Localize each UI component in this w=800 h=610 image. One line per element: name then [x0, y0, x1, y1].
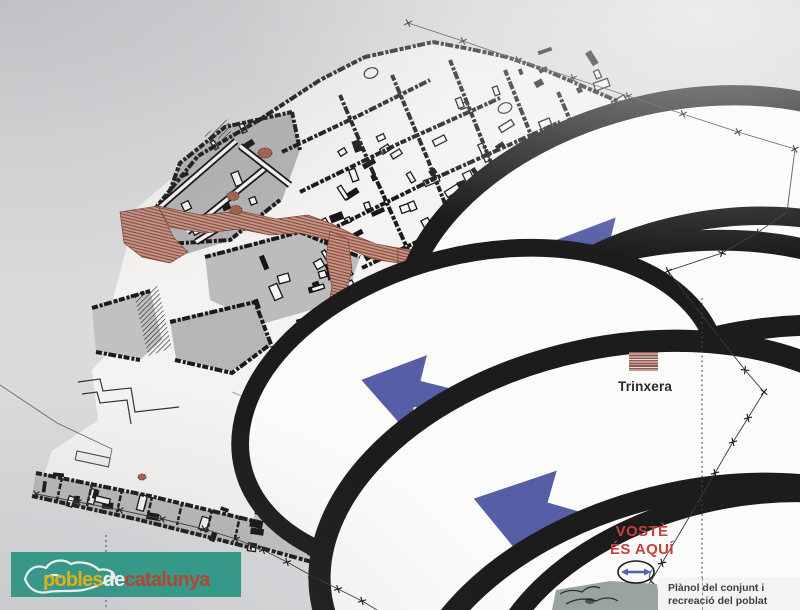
you-are-here-line2: ÉS AQUÍ: [596, 541, 688, 559]
information-panel-photo: Trinxera VOSTÈ ÉS AQUÍ Plànol del conjun…: [0, 0, 800, 610]
trench-legend-swatch-icon: [629, 352, 658, 371]
boundary-dotted-line: [702, 578, 703, 610]
you-are-here-label: VOSTÈ ÉS AQUÍ: [596, 523, 688, 559]
caption-box: Plànol del conjunt i recreació del pobla…: [658, 578, 800, 610]
logo-text-pobles: pobles: [43, 569, 103, 591]
map-legend: Trinxera: [618, 352, 688, 394]
trench-legend-label: Trinxera: [618, 379, 688, 394]
caption-line2: recreació del poblat: [668, 595, 800, 608]
logo-text: poblesdecatalunya: [43, 570, 209, 590]
logo-text-catalunya: catalunya: [124, 569, 209, 591]
you-are-here-line1: VOSTÈ: [596, 523, 688, 541]
site-plan-drawing: [0, 0, 800, 610]
logo-text-de: de: [103, 569, 125, 591]
caption-line1: Plànol del conjunt i: [668, 582, 800, 595]
pobles-de-catalunya-watermark: poblesdecatalunya: [11, 552, 241, 597]
you-are-here-marker-icon: [618, 561, 654, 583]
